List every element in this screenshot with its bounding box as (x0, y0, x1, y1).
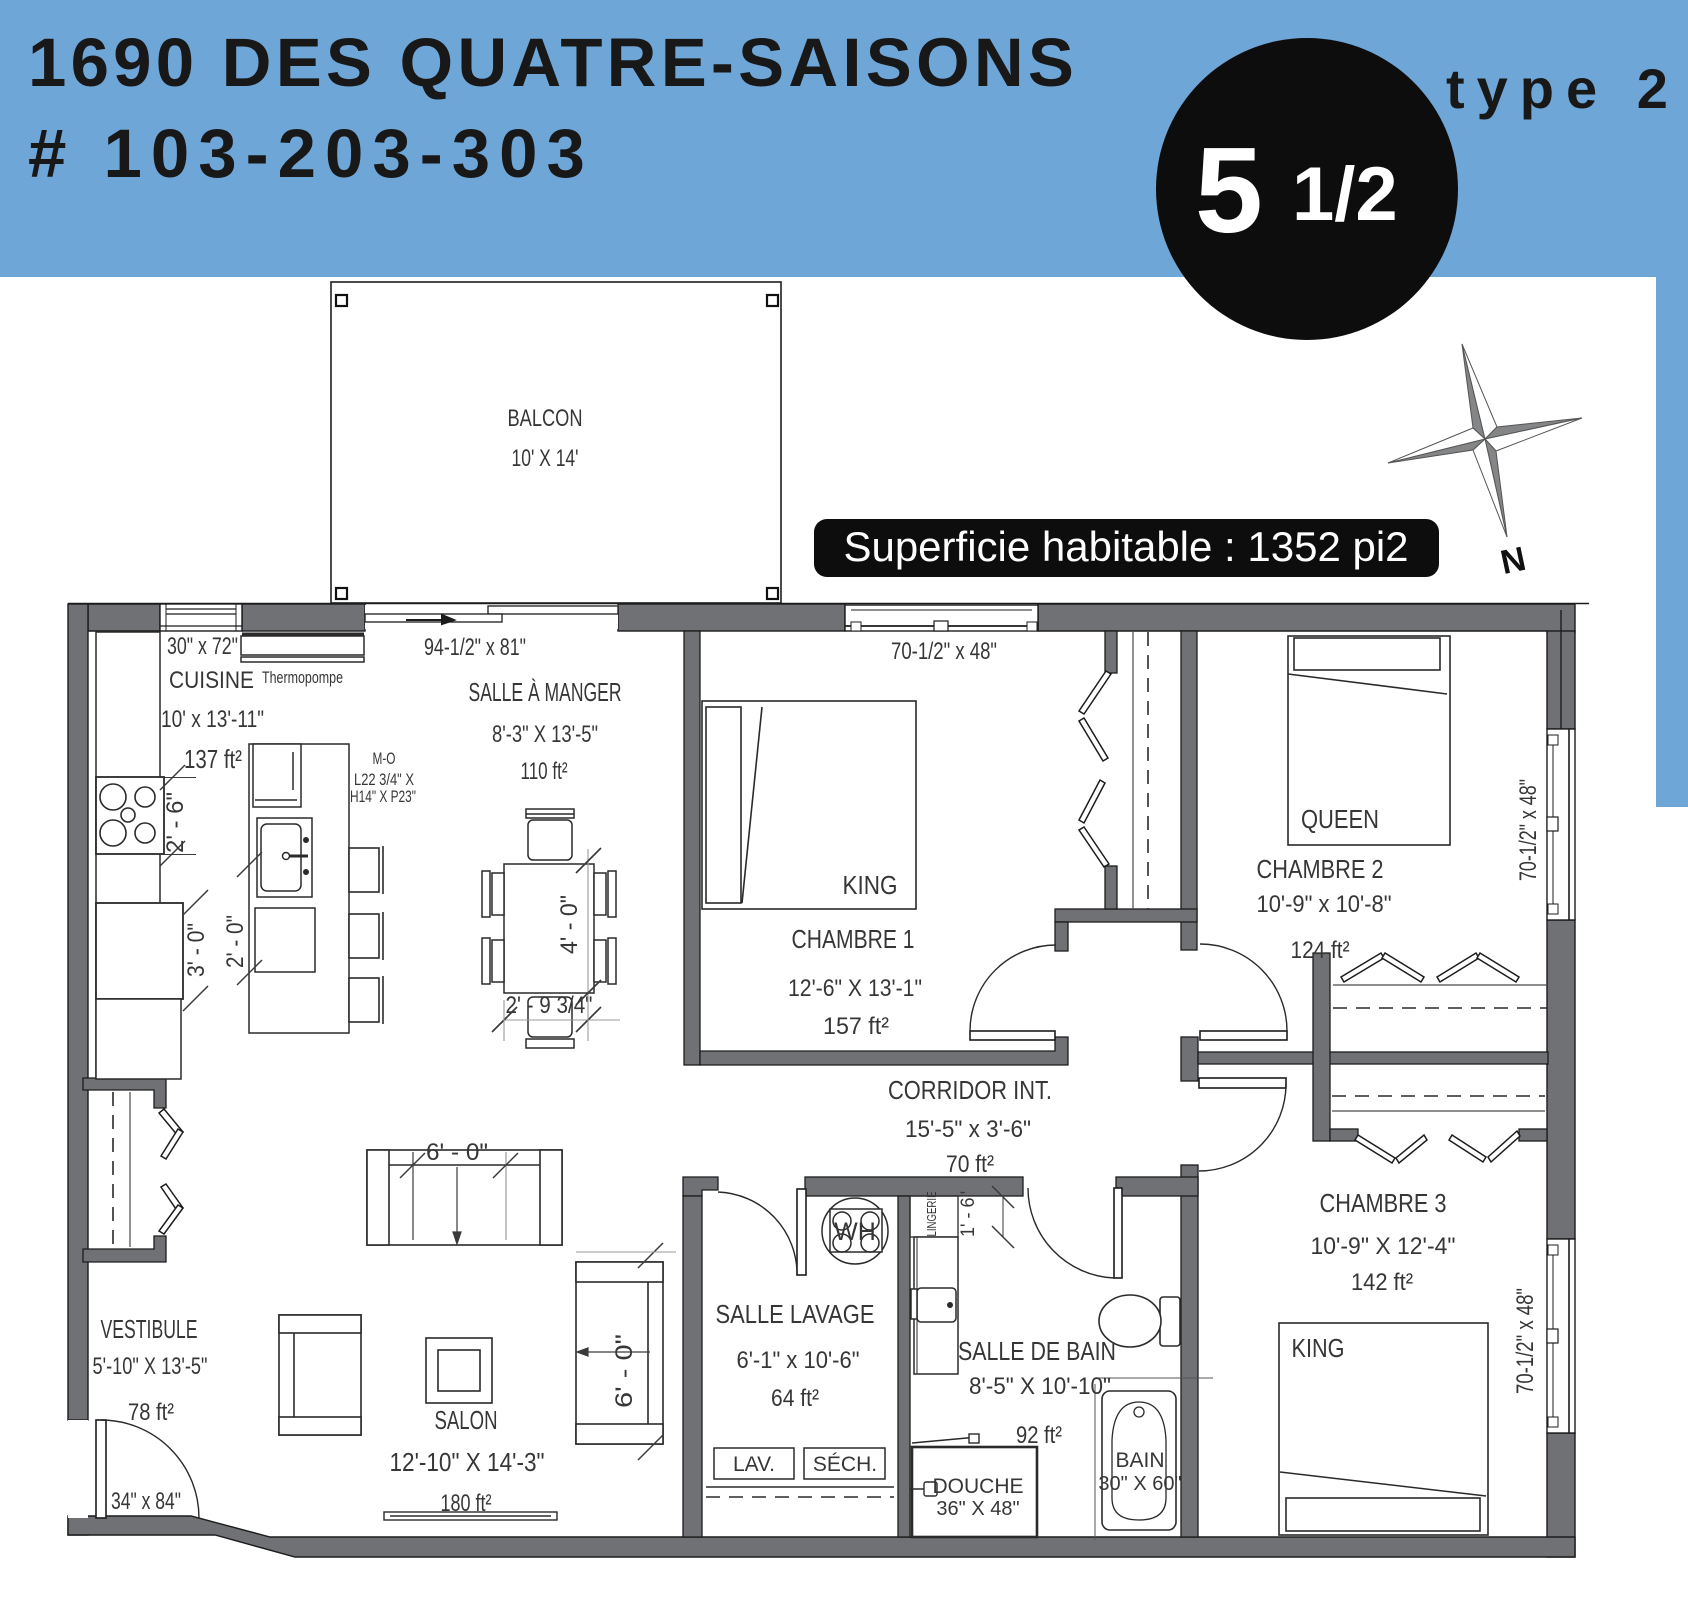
svg-text:1' - 6": 1' - 6" (958, 1191, 979, 1237)
svg-text:SALON: SALON (435, 1405, 498, 1435)
svg-text:SALLE À MANGER: SALLE À MANGER (469, 677, 622, 707)
svg-text:H14" X P23": H14" X P23" (350, 787, 416, 806)
svg-text:110 ft²: 110 ft² (521, 758, 568, 785)
svg-text:CUISINE: CUISINE (169, 667, 254, 694)
svg-text:142 ft²: 142 ft² (1351, 1269, 1413, 1296)
svg-text:KING: KING (843, 870, 898, 900)
svg-text:10'-9" x 10'-8": 10'-9" x 10'-8" (1257, 891, 1392, 918)
svg-text:CHAMBRE 2: CHAMBRE 2 (1257, 854, 1384, 884)
svg-text:SALLE DE BAIN: SALLE DE BAIN (958, 1336, 1116, 1366)
svg-text:180 ft²: 180 ft² (441, 1490, 492, 1517)
svg-text:BALCON: BALCON (508, 405, 583, 432)
svg-text:CHAMBRE 1: CHAMBRE 1 (792, 924, 915, 954)
svg-text:WH: WH (834, 1218, 876, 1246)
svg-text:12'-6" X 13'-1": 12'-6" X 13'-1" (788, 975, 922, 1002)
svg-text:CHAMBRE 3: CHAMBRE 3 (1320, 1188, 1447, 1218)
svg-text:94-1/2" x 81": 94-1/2" x 81" (424, 634, 526, 661)
svg-text:78 ft²: 78 ft² (128, 1399, 174, 1426)
svg-text:CORRIDOR INT.: CORRIDOR INT. (888, 1075, 1052, 1105)
svg-text:1/2: 1/2 (1292, 152, 1398, 237)
svg-text:70 ft²: 70 ft² (946, 1151, 994, 1178)
svg-text:2' - 0": 2' - 0" (222, 915, 249, 968)
svg-text:70-1/2" x 48": 70-1/2" x 48" (1515, 779, 1542, 881)
svg-text:10'-9" X 12'-4": 10'-9" X 12'-4" (1311, 1233, 1456, 1260)
svg-text:92 ft²: 92 ft² (1016, 1422, 1062, 1449)
svg-text:type 2: type 2 (1446, 57, 1680, 120)
svg-text:BAIN: BAIN (1115, 1449, 1164, 1472)
svg-text:3' - 0": 3' - 0" (183, 923, 210, 977)
svg-text:34" x 84": 34" x 84" (111, 1488, 181, 1515)
svg-text:12'-10" X 14'-3": 12'-10" X 14'-3" (390, 1447, 545, 1477)
svg-text:LINGERIE: LINGERIE (924, 1191, 939, 1236)
svg-text:5'-10" X 13'-5": 5'-10" X 13'-5" (93, 1353, 208, 1380)
svg-text:10' X 14': 10' X 14' (512, 445, 579, 472)
svg-text:QUEEN: QUEEN (1301, 804, 1379, 834)
svg-text:KING: KING (1292, 1333, 1345, 1363)
svg-text:157 ft²: 157 ft² (823, 1013, 889, 1040)
svg-text:15'-5" x 3'-6": 15'-5" x 3'-6" (905, 1116, 1031, 1143)
svg-text:Thermopompe: Thermopompe (262, 668, 343, 687)
svg-text:8'-5" X 10'-10": 8'-5" X 10'-10" (969, 1373, 1111, 1400)
svg-text:Superficie habitable : 1352 pi: Superficie habitable : 1352 pi2 (843, 523, 1408, 570)
svg-text:137 ft²: 137 ft² (184, 744, 242, 774)
svg-text:2' - 6": 2' - 6" (162, 792, 189, 853)
svg-text:LAV.: LAV. (733, 1453, 775, 1476)
svg-text:4' - 0": 4' - 0" (556, 895, 583, 954)
svg-text:70-1/2" x 48": 70-1/2" x 48" (891, 638, 997, 665)
svg-text:DOUCHE: DOUCHE (932, 1475, 1023, 1498)
svg-text:2' - 9 3/4": 2' - 9 3/4" (506, 992, 593, 1019)
svg-text:# 103-203-303: # 103-203-303 (28, 115, 594, 192)
svg-text:64 ft²: 64 ft² (771, 1385, 819, 1412)
svg-text:30" X 60": 30" X 60" (1098, 1473, 1181, 1495)
svg-text:6'-1" x 10'-6": 6'-1" x 10'-6" (737, 1347, 860, 1374)
svg-text:30" x 72": 30" x 72" (167, 633, 238, 660)
svg-text:6' - 0": 6' - 0" (611, 1334, 638, 1408)
svg-text:6' - 0": 6' - 0" (426, 1139, 488, 1166)
svg-text:10' x 13'-11": 10' x 13'-11" (161, 706, 264, 733)
svg-text:1690 DES QUATRE-SAISONS: 1690 DES QUATRE-SAISONS (28, 24, 1078, 101)
svg-text:70-1/2" x 48": 70-1/2" x 48" (1512, 1288, 1539, 1394)
svg-text:SÉCH.: SÉCH. (813, 1453, 877, 1476)
svg-text:M-O: M-O (373, 749, 396, 768)
svg-text:5: 5 (1195, 122, 1263, 258)
svg-text:36" X 48": 36" X 48" (936, 1498, 1019, 1520)
svg-text:124 ft²: 124 ft² (1291, 937, 1350, 964)
svg-text:8'-3" X 13'-5": 8'-3" X 13'-5" (492, 721, 598, 748)
svg-text:SALLE LAVAGE: SALLE LAVAGE (716, 1299, 875, 1329)
svg-text:VESTIBULE: VESTIBULE (101, 1314, 198, 1344)
